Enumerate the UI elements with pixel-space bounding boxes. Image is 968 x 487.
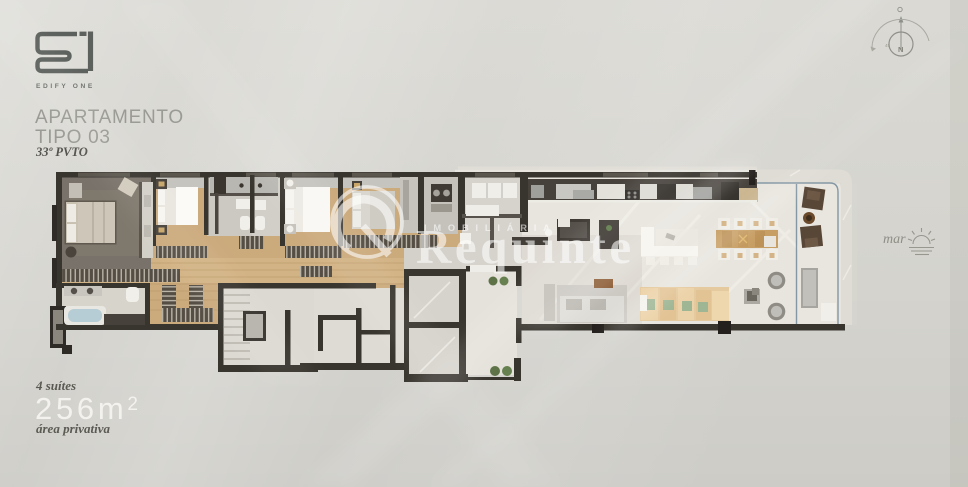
- svg-text:IMOBILIÁRIA: IMOBILIÁRIA: [424, 223, 557, 233]
- svg-text:N: N: [898, 45, 903, 54]
- svg-text:área privativa: área privativa: [36, 421, 111, 436]
- svg-text:45: 45: [885, 43, 891, 48]
- svg-text:mar: mar: [883, 232, 906, 247]
